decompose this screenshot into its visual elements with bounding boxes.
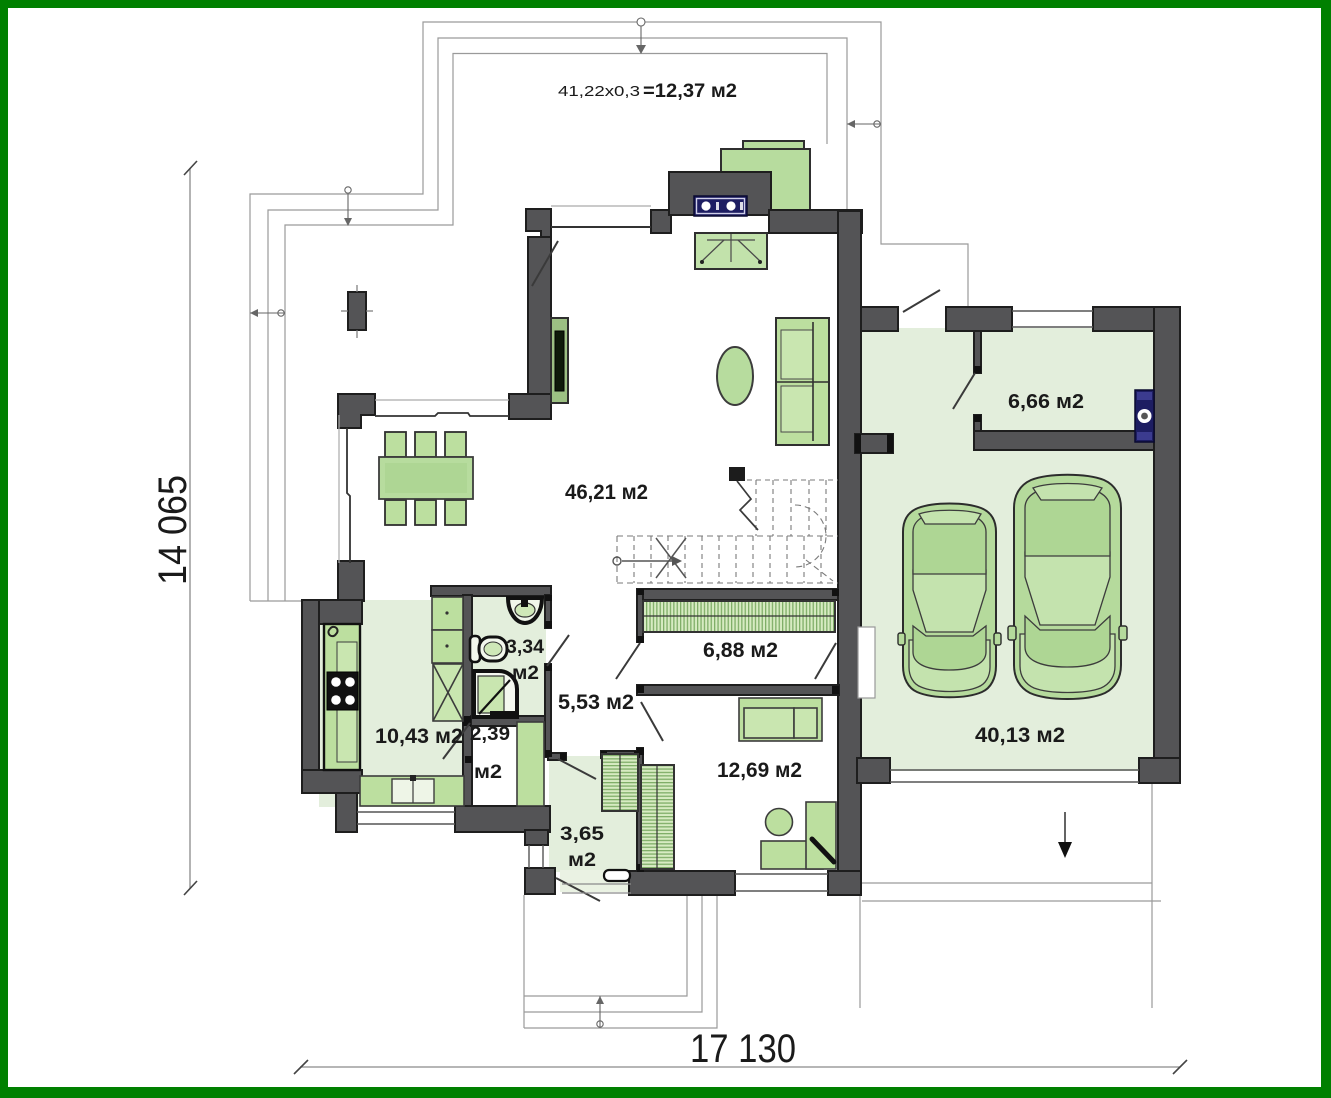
svg-text:14 065: 14 065 (151, 475, 195, 585)
svg-text:=12,37 м2: =12,37 м2 (643, 81, 737, 102)
svg-text:46,21 м2: 46,21 м2 (565, 481, 648, 504)
svg-text:6,66 м2: 6,66 м2 (1008, 391, 1084, 413)
svg-text:12,69 м2: 12,69 м2 (717, 759, 802, 782)
svg-text:40,13 м2: 40,13 м2 (975, 724, 1065, 747)
svg-text:2,39: 2,39 (470, 724, 510, 745)
svg-text:6,88 м2: 6,88 м2 (703, 639, 778, 662)
svg-text:м2: м2 (474, 762, 502, 783)
svg-text:м2: м2 (568, 850, 596, 871)
svg-text:м2: м2 (512, 663, 539, 684)
svg-text:17 130: 17 130 (690, 1027, 796, 1071)
svg-text:41,22x0,3: 41,22x0,3 (558, 83, 640, 100)
svg-text:10,43 м2: 10,43 м2 (375, 725, 463, 748)
svg-text:3,34: 3,34 (506, 637, 544, 658)
svg-text:3,65: 3,65 (560, 824, 605, 845)
svg-text:5,53 м2: 5,53 м2 (558, 691, 634, 714)
